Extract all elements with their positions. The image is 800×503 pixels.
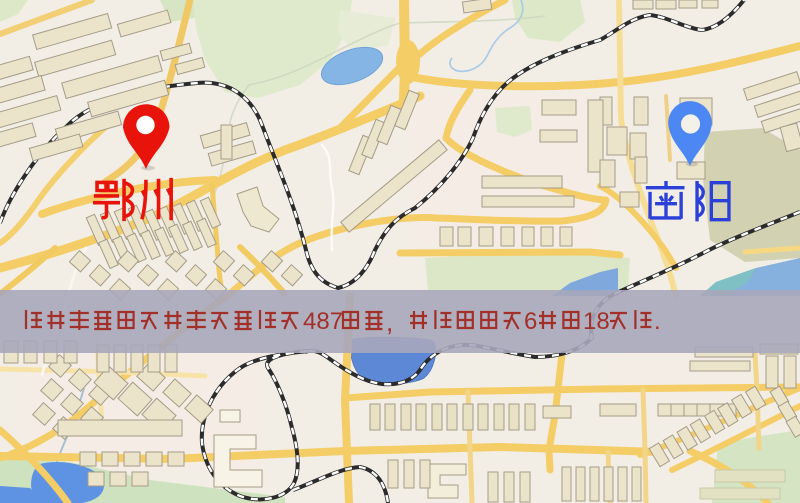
svg-text:,: , xyxy=(386,307,393,337)
svg-text:.: . xyxy=(654,308,661,335)
svg-text:6: 6 xyxy=(524,308,537,335)
svg-text:18: 18 xyxy=(583,308,610,335)
svg-text:487: 487 xyxy=(303,308,343,335)
